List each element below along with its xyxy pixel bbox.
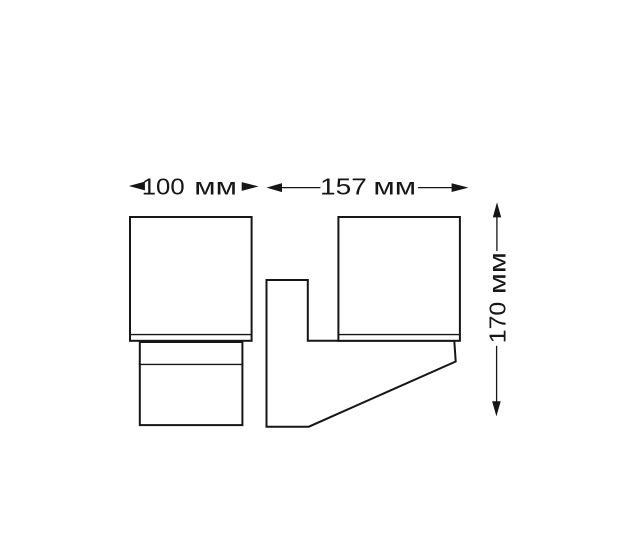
svg-text:мм: мм: [373, 173, 416, 199]
svg-text:мм: мм: [484, 252, 511, 294]
svg-text:157: 157: [320, 175, 367, 200]
svg-text:100: 100: [142, 175, 185, 201]
svg-text:170: 170: [485, 302, 511, 344]
svg-text:мм: мм: [194, 173, 237, 199]
